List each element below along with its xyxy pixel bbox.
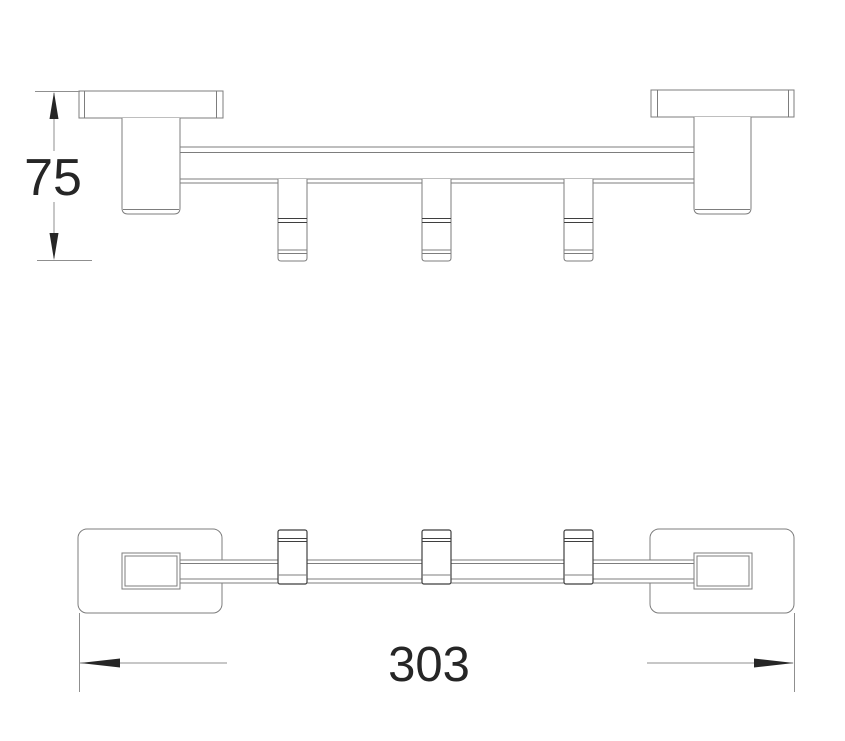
right-mount-post-outline (694, 117, 751, 214)
drawing-canvas: 75 (0, 0, 845, 741)
right-wall-plate-outline (651, 90, 794, 117)
height-dimension-label: 75 (24, 149, 82, 207)
left-wall-plate-side (79, 91, 223, 118)
right-wall-plate-side (651, 90, 794, 117)
hook-outline (422, 179, 451, 261)
side-view-hook-2 (422, 179, 451, 261)
rail-bar-side (180, 147, 694, 183)
right-mount-post-side (694, 117, 751, 214)
width-dimension-label: 303 (388, 638, 470, 692)
hook-outline (278, 179, 307, 261)
right-mount-post-plan (694, 553, 752, 589)
arrow-left-icon (80, 659, 120, 668)
left-mount-post-plan (122, 553, 180, 589)
technical-drawing: 75 (0, 0, 845, 741)
hook-outline (564, 179, 593, 261)
left-mount-post-outline (122, 118, 180, 214)
plan-view-hook-1 (278, 530, 307, 584)
side-view-hook-3 (564, 179, 593, 261)
width-dimension: 303 (80, 613, 795, 692)
arrow-up-icon (50, 92, 59, 119)
arrow-right-icon (754, 659, 794, 668)
left-mount-post-side (122, 118, 180, 214)
left-post-outer-rect (122, 553, 180, 589)
plan-view-hook-3 (564, 530, 593, 584)
left-wall-plate-outline (79, 91, 223, 118)
side-elevation-view: 75 (24, 90, 794, 261)
arrow-down-icon (50, 233, 59, 260)
side-view-hooks (278, 179, 593, 261)
right-post-outer-rect (694, 553, 752, 589)
plan-view-hook-2 (422, 530, 451, 584)
top-plan-view: 303 (78, 529, 795, 692)
side-view-hook-1 (278, 179, 307, 261)
